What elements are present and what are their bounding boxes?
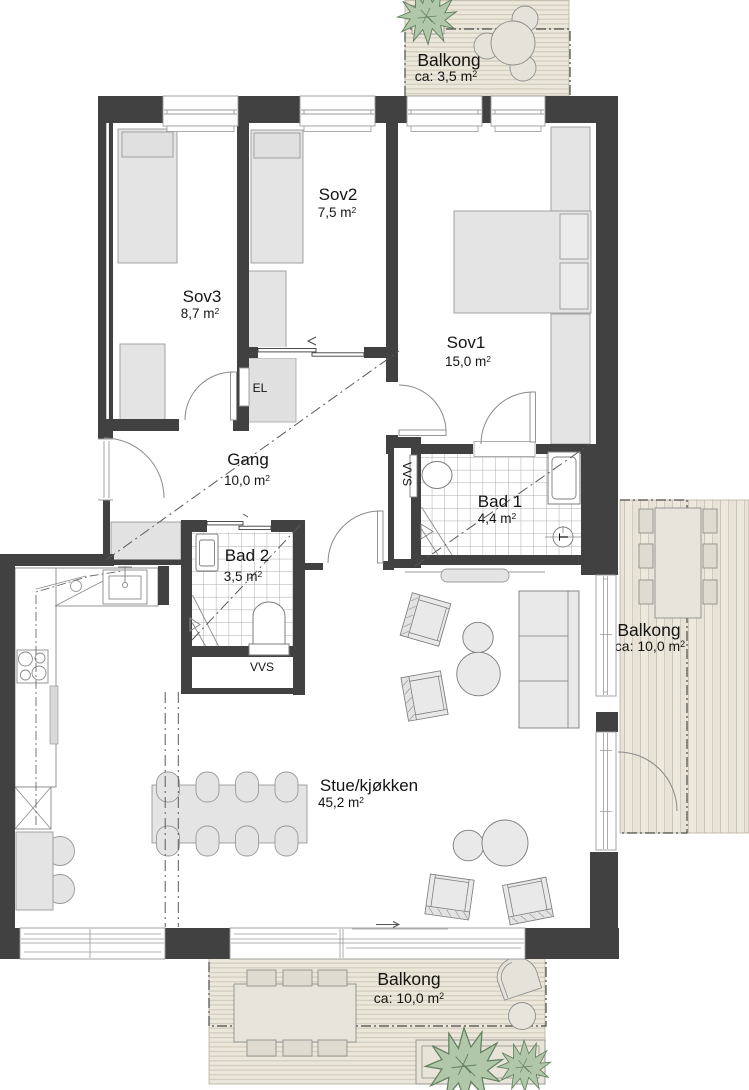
- svg-text:VVS: VVS: [400, 462, 414, 486]
- svg-text:ca: 3,5 m2: ca: 3,5 m2: [415, 68, 478, 84]
- svg-text:Balkong: Balkong: [377, 969, 440, 989]
- svg-text:Bad 2: Bad 2: [225, 546, 269, 565]
- svg-text:EL: EL: [253, 381, 268, 395]
- svg-text:ca: 10,0 m2: ca: 10,0 m2: [615, 638, 685, 654]
- svg-text:10,0 m2: 10,0 m2: [224, 473, 270, 488]
- svg-text:VVS: VVS: [250, 660, 274, 674]
- svg-text:45,2 m2: 45,2 m2: [318, 795, 364, 810]
- svg-text:Sov3: Sov3: [183, 287, 222, 306]
- svg-text:Balkong: Balkong: [617, 620, 680, 640]
- svg-text:T: T: [556, 533, 571, 541]
- svg-text:Stue/kjøkken: Stue/kjøkken: [320, 776, 418, 795]
- svg-text:3,5 m2: 3,5 m2: [224, 569, 263, 584]
- svg-text:Bad 1: Bad 1: [478, 492, 522, 511]
- svg-text:ca: 10,0 m2: ca: 10,0 m2: [374, 990, 444, 1006]
- svg-text:Balkong: Balkong: [417, 50, 480, 70]
- svg-text:Sov1: Sov1: [447, 333, 486, 352]
- svg-text:15,0 m2: 15,0 m2: [445, 354, 491, 369]
- svg-text:Sov2: Sov2: [319, 185, 358, 204]
- svg-text:7,5 m2: 7,5 m2: [318, 205, 357, 220]
- svg-text:4,4 m2: 4,4 m2: [478, 511, 517, 526]
- svg-text:8,7 m2: 8,7 m2: [181, 306, 220, 321]
- svg-text:Gang: Gang: [227, 450, 269, 469]
